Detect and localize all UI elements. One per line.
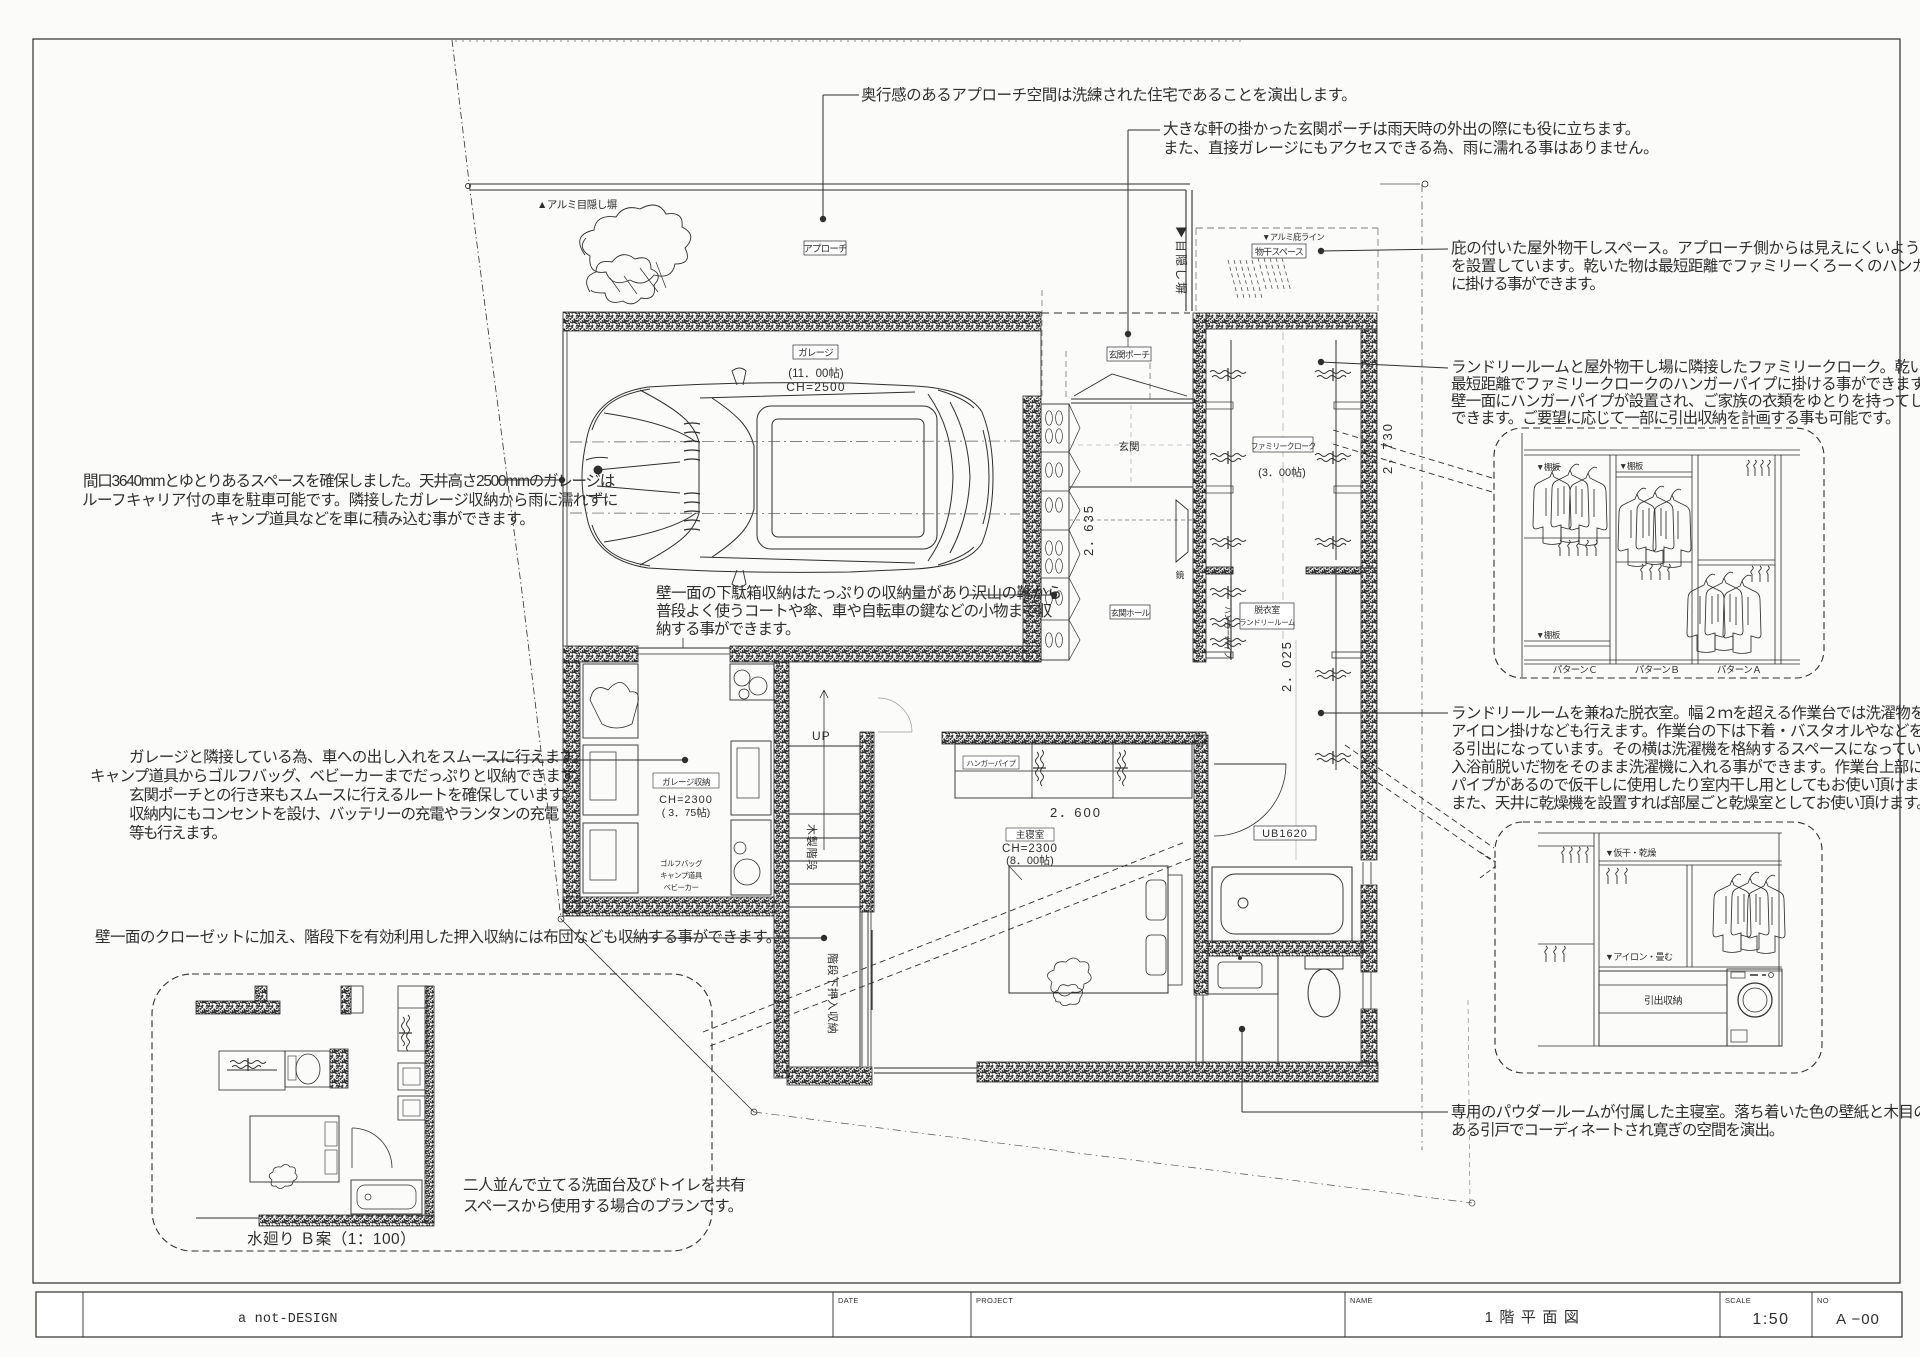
svg-text:入浴前脱いだ物をそのまま洗濯機に入れる事ができます。作業台上: 入浴前脱いだ物をそのまま洗濯機に入れる事ができます。作業台上部にもハンガー: [1451, 758, 1920, 776]
svg-text:スペースから使用する場合のプランです。: スペースから使用する場合のプランです。: [463, 1197, 743, 1215]
svg-text:ハンガーパイプ: ハンガーパイプ: [967, 758, 1017, 768]
svg-text:ランドリールームと屋外物干し場に隣接したファミリークローク。: ランドリールームと屋外物干し場に隣接したファミリークローク。乾いたものは: [1451, 358, 1920, 376]
svg-text:ベビーカー: ベビーカー: [664, 883, 699, 892]
svg-text:a not-DESIGN: a not-DESIGN: [238, 1312, 338, 1327]
svg-text:▶目隠し塀: ▶目隠し塀: [1174, 226, 1188, 296]
svg-text:玄関ホール: 玄関ホール: [1111, 608, 1151, 618]
svg-text:CH=2300: CH=2300: [659, 794, 713, 806]
svg-text:間口3640mmとゆとりあるスペースを確保しました。天井高さ: 間口3640mmとゆとりあるスペースを確保しました。天井高さ2500mmのガレー…: [83, 472, 615, 490]
svg-text:キャンプ道具: キャンプ道具: [660, 870, 703, 880]
svg-text:▼アイロン・畳む: ▼アイロン・畳む: [1605, 952, 1673, 962]
svg-text:▼棚板: ▼棚板: [1536, 630, 1561, 640]
svg-text:壁一面のクローゼットに加え、階段下を有効利用した押入収納には: 壁一面のクローゼットに加え、階段下を有効利用した押入収納には布団なども収納する事…: [95, 928, 781, 946]
svg-text:(3．00帖): (3．00帖): [1258, 466, 1306, 479]
svg-text:ゴルフバッグ: ゴルフバッグ: [660, 858, 703, 868]
svg-text:(11．00帖): (11．00帖): [788, 366, 844, 380]
svg-text:水廻り Ｂ案（1：100）: 水廻り Ｂ案（1：100）: [247, 1230, 416, 1248]
svg-text:▼アルミ庇ライン: ▼アルミ庇ライン: [1262, 232, 1324, 242]
svg-text:パターンＡ: パターンＡ: [1717, 665, 1762, 676]
svg-text:ランドリールーム: ランドリールーム: [1239, 618, 1295, 627]
svg-text:壁一面の下駄箱収納はたっぷりの収納量があり沢山の靴から: 壁一面の下駄箱収納はたっぷりの収納量があり沢山の靴から: [656, 584, 1062, 602]
svg-text:▼棚板: ▼棚板: [1536, 462, 1561, 472]
svg-text:専用のパウダールームが付属した主寝室。落ち着いた色の壁紙と木: 専用のパウダールームが付属した主寝室。落ち着いた色の壁紙と木目の暖かみの: [1451, 1102, 1920, 1121]
svg-text:NAME: NAME: [1350, 1296, 1373, 1305]
svg-text:(8．00帖): (8．00帖): [1006, 854, 1054, 867]
svg-text:ガレージと隣接している為、車への出し入れをスムースに行えます: ガレージと隣接している為、車への出し入れをスムースに行えます。: [129, 748, 588, 766]
svg-text:UB1620: UB1620: [1262, 828, 1308, 840]
svg-text:2．635: 2．635: [1081, 504, 1096, 556]
svg-text:A −00: A −00: [1836, 1311, 1880, 1328]
svg-text:等も行えます。: 等も行えます。: [129, 824, 225, 842]
svg-text:納する事ができます。: 納する事ができます。: [656, 620, 799, 638]
svg-text:CH=2500: CH=2500: [786, 380, 845, 394]
svg-text:ある引戸でコーディネートされ寛ぎの空間を演出。: ある引戸でコーディネートされ寛ぎの空間を演出。: [1451, 1120, 1783, 1139]
svg-text:2．600: 2．600: [1050, 805, 1102, 820]
svg-text:CH=2300: CH=2300: [1002, 843, 1058, 855]
svg-text:( 3．75帖): ( 3．75帖): [662, 806, 710, 819]
svg-text:キャンプ道具からゴルフバッグ、ベビーカーまでだっぷりと収納で: キャンプ道具からゴルフバッグ、ベビーカーまでだっぷりと収納できます。: [90, 766, 588, 785]
svg-text:パターンＣ: パターンＣ: [1553, 665, 1598, 676]
svg-text:鏡: 鏡: [1176, 570, 1185, 580]
svg-text:大きな軒の掛かった玄関ポーチは雨天時の外出の際にも役に立ちま: 大きな軒の掛かった玄関ポーチは雨天時の外出の際にも役に立ちます。: [1163, 120, 1640, 138]
svg-text:アイロン掛けなども行えます。作業台の下は下着・バスタオルやな: アイロン掛けなども行えます。作業台の下は下着・バスタオルやなどを収納でき: [1451, 722, 1920, 740]
svg-text:奥行感のあるアプローチ空間は洗練された住宅であることを演出し: 奥行感のあるアプローチ空間は洗練された住宅であることを演出します。: [861, 86, 1356, 104]
svg-text:物干スペース: 物干スペース: [1255, 246, 1304, 257]
svg-text:UP: UP: [812, 729, 831, 743]
svg-text:できます。ご要望に応じて一部に引出収納を計画する事も可能です: できます。ご要望に応じて一部に引出収納を計画する事も可能です。: [1451, 409, 1900, 427]
svg-text:ランドリールームを兼ねた脱衣室。幅２ｍを超える作業台では洗濯: ランドリールームを兼ねた脱衣室。幅２ｍを超える作業台では洗濯物を畳んだり: [1451, 704, 1920, 722]
svg-text:を設置しています。乾いた物は最短距離でファミリーくろーくのハ: を設置しています。乾いた物は最短距離でファミリーくろーくのハンガーパイプ: [1451, 257, 1920, 275]
svg-text:玄関ポーチ: 玄関ポーチ: [1108, 349, 1150, 360]
svg-text:庇の付いた屋外物干しスペース。アプローチ側からは見えにくいよ: 庇の付いた屋外物干しスペース。アプローチ側からは見えにくいよう目隠し塀: [1451, 239, 1920, 257]
svg-text:る引出になっています。その横は洗濯機を格納するスペースになっ: る引出になっています。その横は洗濯機を格納するスペースになっているので: [1451, 740, 1920, 758]
svg-text:壁一面にハンガーパイプが設置され、ご家族の衣類をゆとりを持っ: 壁一面にハンガーパイプが設置され、ご家族の衣類をゆとりを持ってしまう事が: [1451, 392, 1920, 410]
svg-text:PROJECT: PROJECT: [976, 1296, 1013, 1305]
svg-text:2．025: 2．025: [1279, 640, 1294, 692]
svg-text:普段よく使うコートや傘、車や自転車の鍵などの小物まで収: 普段よく使うコートや傘、車や自転車の鍵などの小物まで収: [656, 602, 1053, 620]
svg-text:階段下押入収納: 階段下押入収納: [826, 953, 840, 1034]
svg-text:玄関: 玄関: [1119, 440, 1140, 453]
svg-text:パイプがあるので仮干しに使用したり室内干し用としてもお使い頂: パイプがあるので仮干しに使用したり室内干し用としてもお使い頂けます。: [1451, 776, 1920, 794]
svg-text:収納内にもコンセントを設け、バッテリーの充電やランタンの充電: 収納内にもコンセントを設け、バッテリーの充電やランタンの充電: [129, 805, 559, 823]
svg-text:に掛ける事ができます。: に掛ける事ができます。: [1451, 275, 1603, 293]
svg-text:引出収納: 引出収納: [1644, 994, 1683, 1007]
svg-text:ルーフキャリア付の車を駐車可能です。隣接したガレージ収納から: ルーフキャリア付の車を駐車可能です。隣接したガレージ収納から雨に濡れずに: [82, 491, 618, 509]
svg-text:ガレージ収納: ガレージ収納: [662, 777, 710, 787]
svg-text:ハンガーパイプ: ハンガーパイプ: [1223, 606, 1233, 659]
svg-text:また、天井に乾燥機を設置すれば部屋ごと乾燥室としてお使い頂け: また、天井に乾燥機を設置すれば部屋ごと乾燥室としてお使い頂けます。: [1451, 794, 1920, 812]
svg-text:NO: NO: [1817, 1296, 1829, 1305]
svg-text:SCALE: SCALE: [1725, 1296, 1751, 1305]
svg-text:1:50: 1:50: [1752, 1311, 1789, 1328]
svg-text:最短距離でファミリークロークのハンガーパイプに掛ける事ができ: 最短距離でファミリークロークのハンガーパイプに掛ける事ができます。: [1451, 375, 1920, 393]
svg-text:1階平面図: 1階平面図: [1485, 1309, 1586, 1326]
svg-text:また、直接ガレージにもアクセスできる為、雨に濡れる事はありま: また、直接ガレージにもアクセスできる為、雨に濡れる事はありません。: [1163, 139, 1658, 157]
svg-text:主寝室: 主寝室: [1016, 829, 1045, 841]
svg-text:▼仮干・乾燥: ▼仮干・乾燥: [1605, 847, 1656, 858]
svg-text:ガレージ: ガレージ: [798, 348, 833, 359]
svg-text:パターンＢ: パターンＢ: [1635, 665, 1680, 676]
svg-text:▼棚板: ▼棚板: [1619, 461, 1644, 471]
svg-text:キャンプ道具などを車に積み込む事ができます。: キャンプ道具などを車に積み込む事ができます。: [210, 510, 534, 528]
svg-text:▲アルミ目隠し塀: ▲アルミ目隠し塀: [537, 199, 618, 211]
svg-text:玄関ポーチとの行き来もスムースに行えるルートを確保しています: 玄関ポーチとの行き来もスムースに行えるルートを確保しています。: [129, 786, 576, 804]
svg-text:アプローチ: アプローチ: [803, 244, 847, 255]
svg-text:脱衣室: 脱衣室: [1254, 604, 1280, 615]
svg-text:木製階段: 木製階段: [805, 824, 819, 871]
svg-text:DATE: DATE: [838, 1296, 859, 1305]
svg-text:二人並んで立てる洗面台及びトイレを共有: 二人並んで立てる洗面台及びトイレを共有: [463, 1176, 745, 1194]
svg-text:ファミリークローク: ファミリークローク: [1251, 442, 1316, 451]
